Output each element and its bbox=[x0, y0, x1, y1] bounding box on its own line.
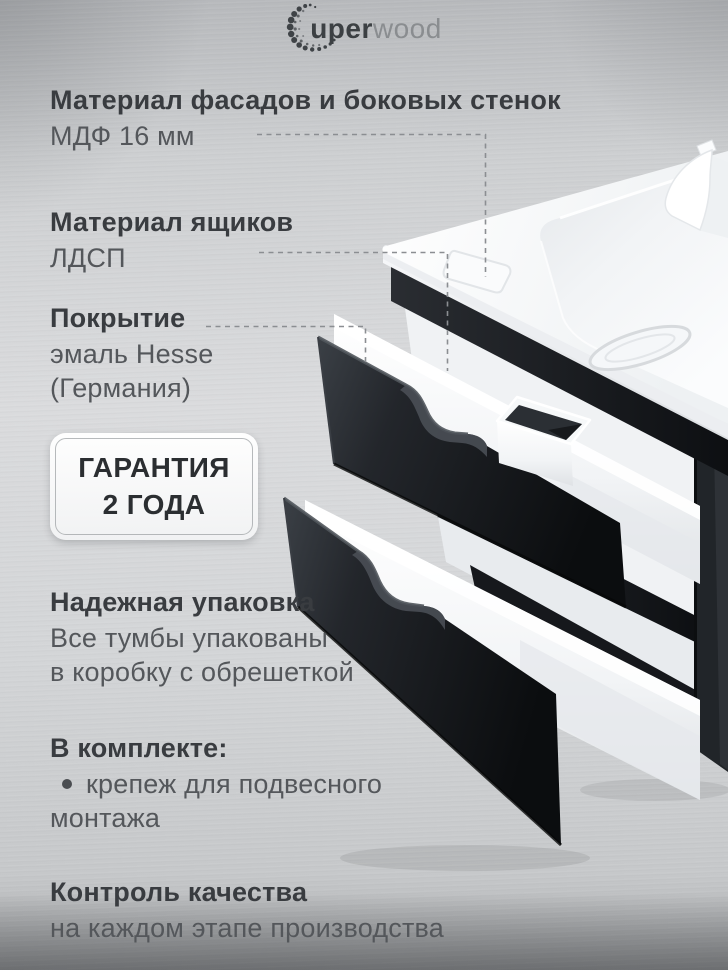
brand-name-bold: uper bbox=[310, 13, 373, 44]
feature-facade-title: Материал фасадов и боковых стенок bbox=[50, 84, 561, 116]
brand-name: uperwood bbox=[310, 6, 442, 52]
feature-facade-material: Материал фасадов и боковых стенок МДФ 16… bbox=[50, 84, 561, 153]
feature-packaging: Надежная упаковка Все тумбы упакованы в … bbox=[50, 586, 354, 689]
included-item: крепеж для подвесного bbox=[50, 767, 382, 801]
feature-coating: Покрытие эмаль Hesse (Германия) bbox=[50, 302, 213, 405]
feature-quality-value: на каждом этапе производства bbox=[50, 911, 444, 945]
feature-quality-control: Контроль качества на каждом этапе произв… bbox=[50, 876, 444, 945]
included-item-line1: крепеж для подвесного bbox=[86, 767, 382, 801]
feature-facade-value: МДФ 16 мм bbox=[50, 119, 561, 153]
warranty-badge: ГАРАНТИЯ 2 ГОДА bbox=[50, 433, 258, 540]
feature-drawers-title: Материал ящиков bbox=[50, 206, 293, 238]
feature-packaging-line1: Все тумбы упакованы bbox=[50, 621, 354, 655]
feature-included: В комплекте: крепеж для подвесного монта… bbox=[50, 732, 382, 835]
feature-included-title: В комплекте: bbox=[50, 732, 382, 764]
brand-logo: uperwood bbox=[286, 2, 442, 52]
feature-coating-line2: (Германия) bbox=[50, 371, 213, 405]
feature-packaging-title: Надежная упаковка bbox=[50, 586, 354, 618]
bullet-dot-icon bbox=[62, 779, 72, 789]
brand-name-light: wood bbox=[373, 13, 442, 44]
feature-coating-title: Покрытие bbox=[50, 302, 213, 334]
included-item-line2: монтажа bbox=[50, 801, 382, 835]
feature-coating-line1: эмаль Hesse bbox=[50, 337, 213, 371]
product-card: uperwood Материал фасадов и боковых стен… bbox=[0, 0, 728, 970]
feature-drawer-material: Материал ящиков ЛДСП bbox=[50, 206, 293, 275]
feature-drawers-value: ЛДСП bbox=[50, 241, 293, 275]
feature-packaging-line2: в коробку с обрешеткой bbox=[50, 655, 354, 689]
feature-quality-title: Контроль качества bbox=[50, 876, 444, 908]
warranty-badge-border bbox=[55, 438, 253, 535]
